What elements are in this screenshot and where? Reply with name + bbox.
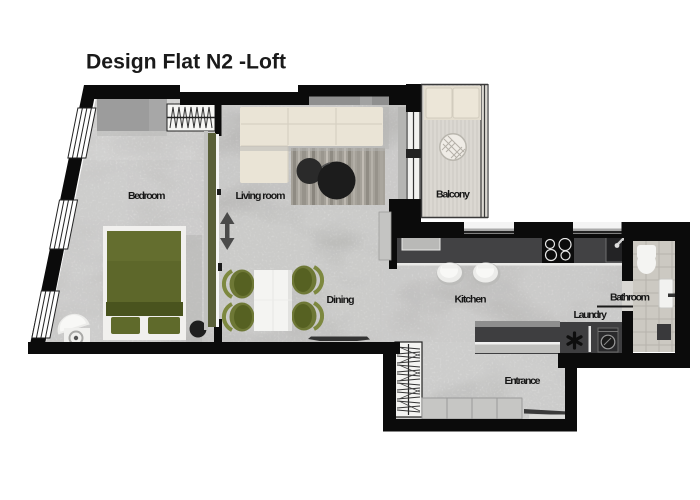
svg-text:Design Flat N2 -Loft: Design Flat N2 -Loft — [86, 50, 286, 74]
svg-text:Bedroom: Bedroom — [128, 190, 166, 202]
svg-text:Dining: Dining — [327, 294, 355, 306]
svg-text:Balcony: Balcony — [436, 189, 470, 201]
svg-text:Entrance: Entrance — [505, 375, 541, 387]
svg-text:Living room: Living room — [236, 190, 286, 202]
svg-text:Laundry: Laundry — [574, 309, 608, 321]
svg-text:Kitchen: Kitchen — [455, 294, 487, 306]
svg-text:Bathroom: Bathroom — [610, 292, 650, 304]
